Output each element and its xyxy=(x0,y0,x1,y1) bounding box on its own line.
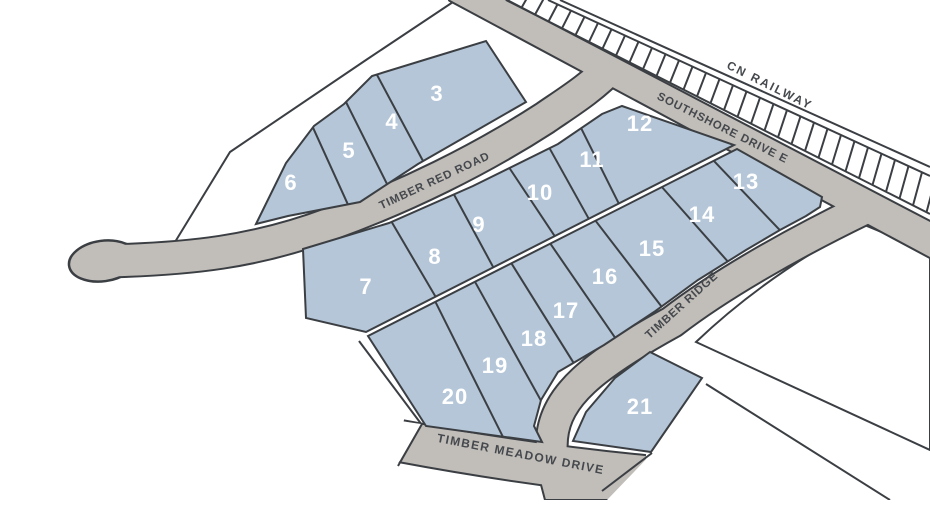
svg-text:18: 18 xyxy=(521,326,547,351)
svg-text:10: 10 xyxy=(527,180,553,205)
svg-text:6: 6 xyxy=(284,170,297,195)
svg-text:11: 11 xyxy=(579,147,604,172)
svg-text:15: 15 xyxy=(639,236,665,261)
svg-text:5: 5 xyxy=(342,138,355,163)
svg-text:3: 3 xyxy=(430,81,443,106)
svg-text:16: 16 xyxy=(592,264,618,289)
svg-text:19: 19 xyxy=(482,353,508,378)
svg-text:13: 13 xyxy=(733,169,759,194)
svg-text:20: 20 xyxy=(442,384,468,409)
svg-text:4: 4 xyxy=(385,109,398,134)
svg-text:9: 9 xyxy=(472,212,485,237)
svg-text:12: 12 xyxy=(627,111,653,136)
svg-text:21: 21 xyxy=(627,394,653,419)
svg-text:17: 17 xyxy=(553,298,579,323)
svg-text:7: 7 xyxy=(359,274,372,299)
svg-text:14: 14 xyxy=(689,202,715,227)
svg-text:8: 8 xyxy=(428,244,441,269)
